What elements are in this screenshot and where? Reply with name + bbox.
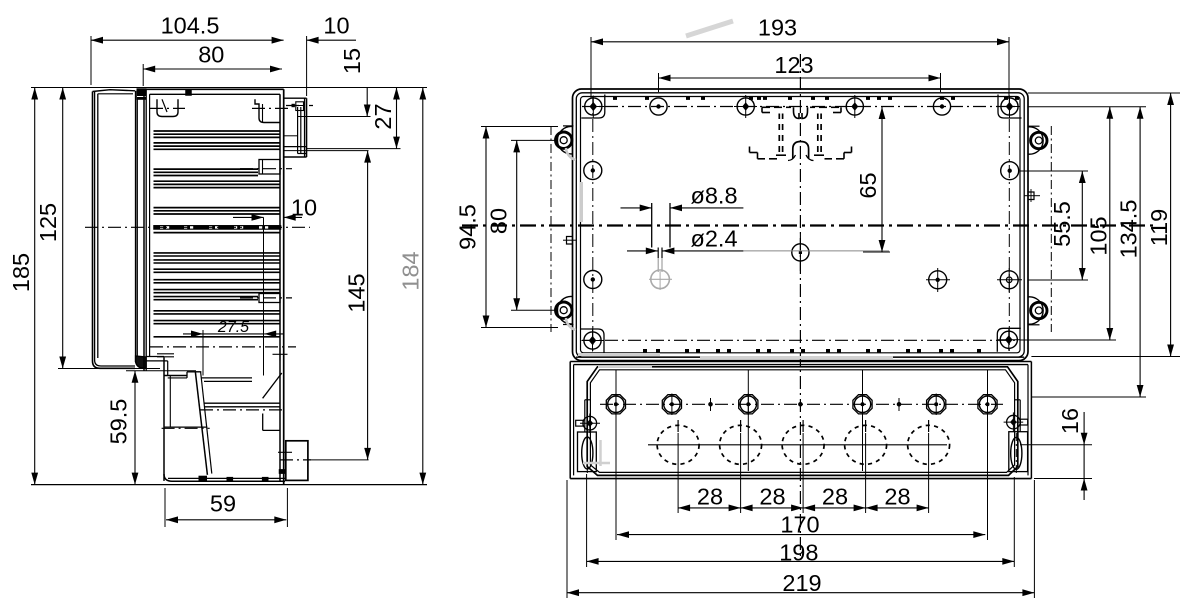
svg-text:65: 65 [855,172,881,198]
svg-text:185: 185 [8,253,34,292]
svg-text:105: 105 [1086,216,1112,255]
svg-text:28: 28 [697,484,723,510]
svg-text:ø8.8: ø8.8 [690,183,737,209]
svg-text:104.5: 104.5 [161,12,220,38]
svg-text:219: 219 [782,570,821,596]
svg-text:28: 28 [884,484,910,510]
svg-text:119: 119 [1146,209,1172,246]
svg-text:134.5: 134.5 [1116,200,1142,259]
svg-text:10: 10 [323,12,349,38]
svg-text:10: 10 [291,195,317,221]
svg-text:55.5: 55.5 [1049,201,1075,247]
svg-text:59: 59 [210,491,236,517]
svg-text:123: 123 [774,52,813,78]
svg-text:ø2.4: ø2.4 [690,226,737,252]
svg-text:125: 125 [35,203,61,242]
svg-text:94.5: 94.5 [455,204,481,250]
svg-text:27: 27 [370,103,396,129]
svg-text:80: 80 [486,208,512,234]
svg-text:27.5: 27.5 [217,319,249,336]
svg-text:193: 193 [758,14,797,40]
svg-text:145: 145 [344,273,370,312]
svg-text:15: 15 [339,48,365,74]
svg-text:170: 170 [780,512,819,538]
svg-text:28: 28 [759,484,785,510]
svg-text:198: 198 [779,540,818,566]
svg-text:184: 184 [398,251,424,290]
svg-text:28: 28 [822,484,848,510]
svg-text:16: 16 [1057,408,1083,434]
svg-text:59.5: 59.5 [106,399,132,445]
svg-text:80: 80 [198,42,224,68]
